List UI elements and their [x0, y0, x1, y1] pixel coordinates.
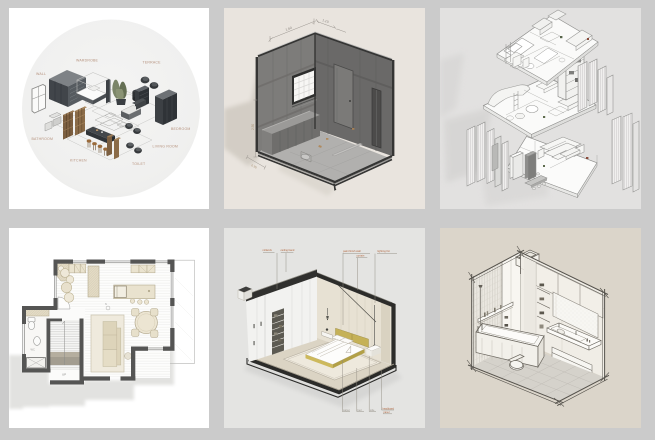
- svg-text:BATHROOM: BATHROOM: [32, 137, 54, 141]
- svg-text:1.10: 1.10: [322, 18, 330, 24]
- svg-text:curtain: curtain: [357, 253, 365, 257]
- svg-text:millwork: millwork: [263, 248, 273, 252]
- svg-text:TERRACE: TERRACE: [143, 61, 162, 65]
- svg-text:panel: panel: [384, 411, 390, 414]
- svg-text:WALL: WALL: [36, 72, 46, 76]
- svg-text:paint finish wall: paint finish wall: [343, 249, 361, 253]
- svg-text:TOILET: TOILET: [132, 162, 146, 166]
- svg-text:KITCHEN: KITCHEN: [70, 159, 87, 163]
- svg-text:UP: UP: [62, 373, 66, 377]
- svg-text:carpet: carpet: [343, 409, 350, 412]
- svg-text:WC: WC: [31, 348, 35, 352]
- svg-text:BEDROOM: BEDROOM: [171, 127, 191, 131]
- svg-text:bed: bed: [358, 409, 363, 412]
- svg-text:side: side: [370, 409, 375, 412]
- svg-text:2.50: 2.50: [251, 124, 255, 130]
- svg-text:ceiling band: ceiling band: [281, 248, 295, 252]
- svg-text:0.90: 0.90: [251, 163, 258, 169]
- svg-text:1.60: 1.60: [285, 26, 293, 32]
- svg-text:N: N: [105, 303, 107, 306]
- svg-text:LIVING ROOM: LIVING ROOM: [153, 145, 179, 149]
- svg-text:headboard: headboard: [383, 407, 395, 410]
- svg-text:lighting fixt: lighting fixt: [378, 249, 391, 253]
- svg-text:WARDROBE: WARDROBE: [76, 59, 99, 63]
